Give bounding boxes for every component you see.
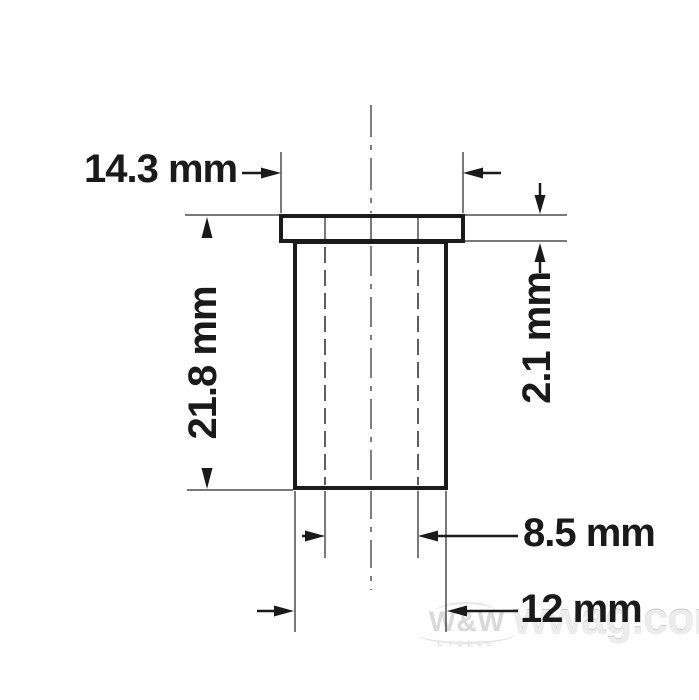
dimension-inner-diameter — [302, 531, 518, 542]
dim-label-inner-diameter: 8.5 mm — [523, 513, 655, 553]
dimension-flange-thickness — [535, 183, 546, 273]
dimension-outer-diameter — [257, 606, 518, 617]
dim-label-flange-diameter: 14.3 mm — [84, 149, 237, 189]
dim-label-flange-thickness: 2.1 mm — [517, 272, 557, 404]
technical-drawing-canvas: W&W CYCLES wwag.com — [0, 0, 699, 700]
part-outline — [281, 216, 463, 488]
dim-label-overall-length: 21.8 mm — [183, 286, 223, 439]
flange-outline — [281, 216, 463, 241]
dim-label-outer-diameter: 12 mm — [520, 589, 642, 629]
